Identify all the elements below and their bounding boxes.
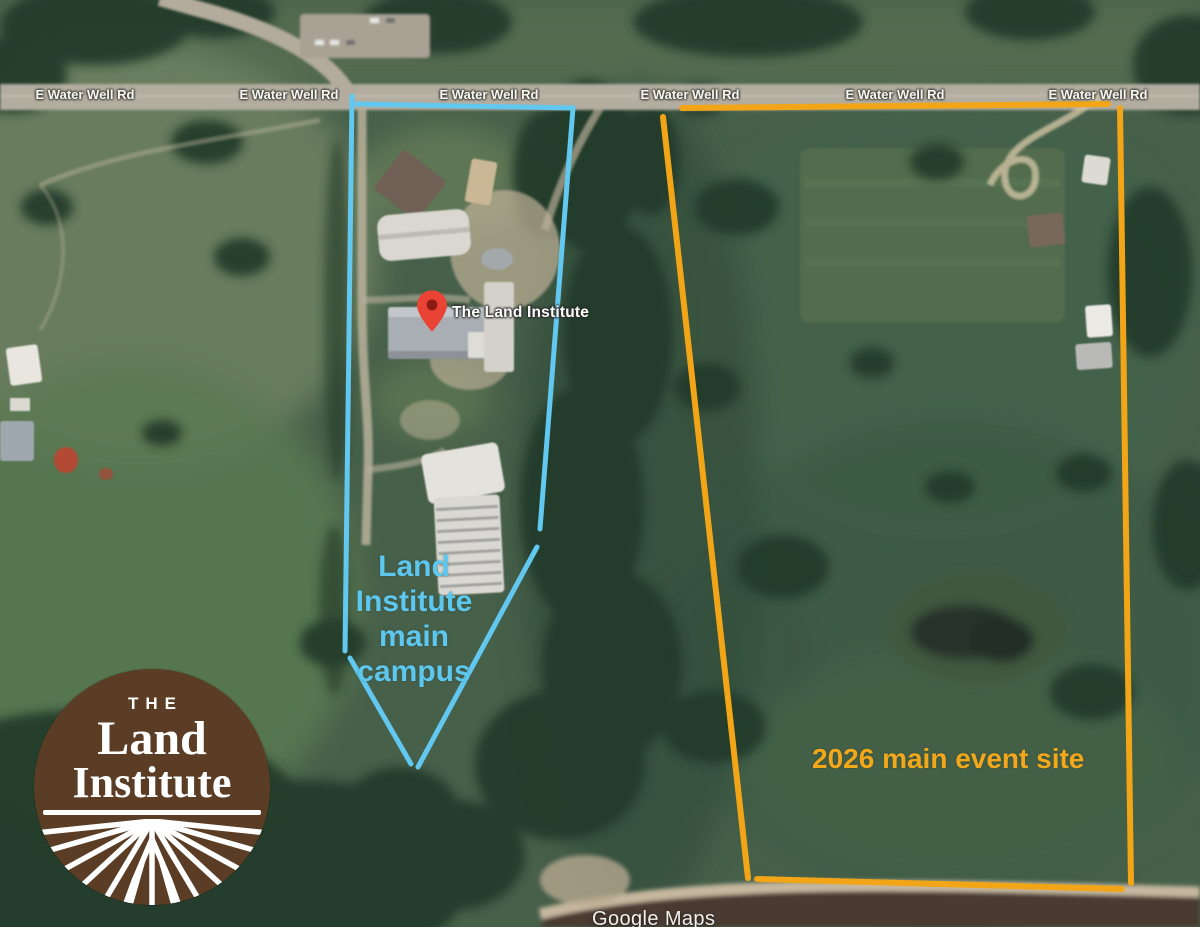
- campus-label-line: Land: [289, 549, 539, 584]
- campus-label-line: Institute: [289, 584, 539, 619]
- neighbor-house-west: [6, 344, 43, 386]
- event-site-label: 2026 main event site: [812, 743, 1084, 775]
- campus-label-line: campus: [289, 654, 539, 689]
- logo-roots-icon: [34, 819, 270, 905]
- map-pin-icon: [417, 289, 447, 333]
- place-label: The Land Institute: [452, 304, 589, 322]
- campus-label-line: main: [289, 619, 539, 654]
- road-label: E Water Well Rd: [440, 87, 539, 102]
- neighbor-house-east: [1026, 212, 1065, 248]
- road-label: E Water Well Rd: [240, 87, 339, 102]
- road-label: E Water Well Rd: [36, 87, 135, 102]
- campus-overlay-label: Land Institute main campus: [289, 549, 539, 689]
- dome-building: [481, 248, 513, 270]
- road-label: E Water Well Rd: [641, 87, 740, 102]
- neighbor-barn-west: [0, 421, 34, 461]
- road-label: E Water Well Rd: [1049, 87, 1148, 102]
- lab-building: [484, 282, 514, 372]
- red-tank: [54, 447, 78, 473]
- land-institute-logo: THE Land Institute: [34, 669, 270, 905]
- parking-lot: [300, 14, 430, 58]
- white-barn: [376, 208, 472, 262]
- pond: [890, 573, 1066, 683]
- google-maps-watermark: Google Maps: [592, 908, 715, 927]
- road-label: E Water Well Rd: [846, 87, 945, 102]
- logo-horizon-line: [43, 810, 261, 815]
- logo-text-land: Land: [34, 716, 270, 762]
- logo-text-institute: Institute: [34, 762, 270, 804]
- map-screenshot: E Water Well Rd E Water Well Rd E Water …: [0, 0, 1200, 927]
